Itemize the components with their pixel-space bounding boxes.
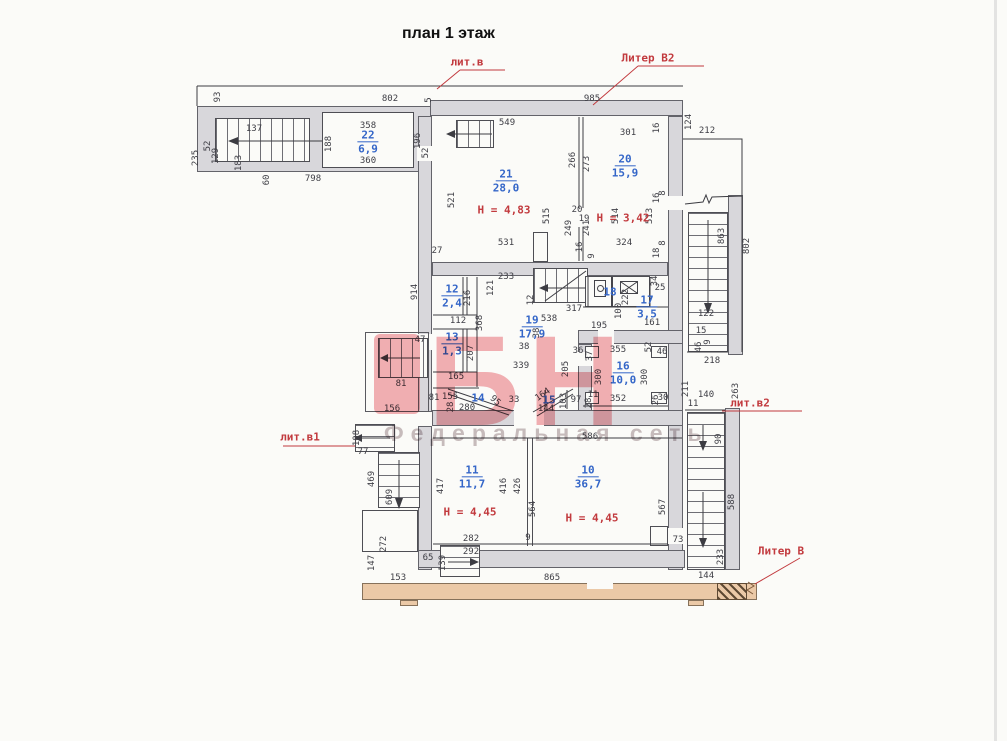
liter-b-tab — [400, 600, 418, 606]
stairs-room-21 — [456, 120, 494, 148]
dimension-label: 144 — [698, 571, 714, 581]
room-number-label: 2015,9 — [612, 152, 639, 179]
room-area: 17,9 — [519, 328, 546, 341]
dimension-label: 865 — [544, 573, 560, 583]
partition — [527, 438, 533, 546]
dimension-label: 549 — [499, 118, 515, 128]
dimension-label: 567 — [658, 499, 668, 515]
dimension-label: 25 — [655, 283, 666, 293]
room-area: 2,4 — [441, 297, 462, 310]
room-number: 17 — [636, 293, 657, 307]
dimension-label: 30 — [658, 393, 669, 403]
dimension-label: 11 — [688, 399, 699, 409]
dimension-label: 233 — [498, 272, 514, 282]
stairs-top-left — [215, 118, 310, 162]
room-number-label: 131,3 — [441, 330, 462, 357]
dimension-label: 52 — [644, 342, 654, 353]
floor-plan-scan: план 1 этаж — [0, 0, 1007, 741]
dimension-label: 802 — [742, 238, 752, 254]
room-number-label: 173,5 — [636, 293, 657, 320]
dimension-label: 802 — [382, 94, 398, 104]
liter-b-tab — [688, 600, 704, 606]
dimension-label: 156 — [384, 404, 400, 414]
dimension-label: 139 — [438, 555, 448, 571]
dimension-label: 129 — [211, 148, 221, 164]
room-area: 10,0 — [610, 374, 637, 387]
dimension-label: 249 — [564, 220, 574, 236]
dimension-label: 863 — [717, 228, 727, 244]
room-number: 10 — [577, 463, 598, 477]
dimension-label: 292 — [463, 547, 479, 557]
dimension-label: 211 — [681, 381, 691, 397]
dimension-label: 355 — [610, 345, 626, 355]
dimension-label: 368 — [475, 315, 485, 331]
room-area: 15,9 — [612, 167, 639, 180]
dimension-label: 609 — [385, 489, 395, 505]
dimension-label: 28 — [446, 402, 456, 413]
dimension-label: 360 — [360, 156, 376, 166]
ceiling-height-label: Н = 4,45 — [444, 506, 497, 519]
room-area: 36,7 — [575, 478, 602, 491]
ceiling-height-label: Н = 4,45 — [566, 512, 619, 525]
room-number-label: 2128,0 — [493, 167, 520, 194]
dimension-label: 218 — [704, 356, 720, 366]
dimension-label: 124 — [684, 114, 694, 130]
dimension-label: 273 — [582, 156, 592, 172]
dimension-label: 212 — [699, 126, 715, 136]
liter-b-building — [362, 583, 757, 600]
liter-label: лит.в2 — [730, 397, 770, 410]
dimension-label: 36 — [573, 346, 584, 356]
liter-b-recess — [587, 582, 613, 589]
dimension-label: 914 — [410, 284, 420, 300]
dimension-label: 352 — [610, 394, 626, 404]
ceiling-height-label: Н = 3,42 — [597, 212, 650, 225]
dimension-label: 155 — [442, 392, 458, 402]
dimension-label: 81 — [429, 393, 440, 403]
dimension-label: 16 — [575, 242, 585, 253]
dimension-label: 233 — [716, 549, 726, 565]
room-number: 20 — [614, 152, 635, 166]
dimension-label: 272 — [379, 536, 389, 552]
dimension-label: 60 — [262, 175, 272, 186]
room-number-label: 15 — [542, 393, 555, 406]
room-number: 18 — [603, 285, 616, 298]
dimension-label: 18 — [652, 248, 662, 259]
room-number: 16 — [612, 359, 633, 373]
dimension-label: 121 — [486, 280, 496, 296]
dimension-label: 324 — [616, 238, 632, 248]
room-area: 6,9 — [357, 143, 378, 156]
dimension-label: 282 — [463, 534, 479, 544]
room-number-label: 1111,7 — [459, 463, 486, 490]
dimension-label: 798 — [305, 174, 321, 184]
room-number-label: 1036,7 — [575, 463, 602, 490]
liter-b-hatched-section — [717, 583, 747, 600]
wall-segment — [418, 426, 432, 570]
dimension-label: 97 — [571, 395, 582, 405]
dimension-label: 90 — [714, 434, 724, 445]
duct-box — [533, 232, 548, 262]
room-number-label: 14 — [471, 391, 484, 404]
dimension-label: 12 — [526, 295, 536, 306]
dimension-label: 521 — [447, 192, 457, 208]
dimension-label: 16 — [652, 123, 662, 134]
dimension-label: 81 — [396, 379, 407, 389]
room-number: 13 — [441, 330, 462, 344]
wall-segment — [578, 330, 683, 344]
dimension-label: 37 — [585, 351, 595, 362]
dimension-label: 137 — [246, 124, 262, 134]
room-number-label: 1917,9 — [519, 313, 546, 340]
room-number-label: 122,4 — [441, 282, 462, 309]
dimension-label: 985 — [584, 94, 600, 104]
scan-edge-shadow — [994, 0, 997, 741]
room-number: 19 — [521, 313, 542, 327]
left-lower-box — [362, 510, 418, 552]
dimension-label: 317 — [566, 304, 582, 314]
dimension-label: 112 — [450, 316, 466, 326]
dimension-label: 65 — [423, 553, 434, 563]
door-opening — [598, 330, 614, 344]
dimension-label: 153 — [390, 573, 406, 583]
dimension-label: 9 — [587, 253, 597, 258]
dimension-label: 8 — [658, 190, 668, 195]
room-number: 22 — [357, 128, 378, 142]
liter-label: Литер В2 — [622, 52, 675, 65]
dimension-label: 38 — [519, 342, 530, 352]
room-number: 11 — [461, 463, 482, 477]
room-area: 11,7 — [459, 478, 486, 491]
fixture-box — [650, 526, 668, 546]
dimension-label: 9 — [525, 533, 530, 543]
door-opening — [667, 196, 684, 210]
dimension-label: 46 — [657, 347, 668, 357]
dimension-label: 47 — [415, 335, 426, 345]
dimension-label: 103 — [559, 393, 569, 409]
dimension-label: 165 — [448, 372, 464, 382]
dimension-label: 33 — [509, 395, 520, 405]
dimension-label: 95 — [488, 394, 503, 409]
wall-segment — [728, 195, 743, 355]
room-area: 28,0 — [493, 182, 520, 195]
dimension-label: 300 — [640, 369, 650, 385]
dimension-label: 147 — [367, 555, 377, 571]
dimension-label: 28 — [584, 398, 594, 409]
dimension-label: 15 — [696, 326, 707, 336]
dimension-label: 416 — [499, 478, 509, 494]
room-number-label: 1610,0 — [610, 359, 637, 386]
dimension-label: 417 — [436, 478, 446, 494]
dimension-label: 8 — [658, 240, 668, 245]
dimension-label: 339 — [513, 361, 529, 371]
dimension-label: 5 — [424, 97, 434, 102]
dimension-label: 531 — [498, 238, 514, 248]
dimension-label: 195 — [591, 321, 607, 331]
liter-label: лит.в1 — [280, 431, 320, 444]
room-area: 3,5 — [636, 308, 657, 321]
dimension-label: 426 — [513, 478, 523, 494]
dimension-label: 469 — [367, 471, 377, 487]
dimension-label: 183 — [234, 155, 244, 171]
liter-label: лит.в — [450, 56, 483, 69]
dimension-label: 216 — [463, 290, 473, 306]
dimension-label: 207 — [466, 345, 476, 361]
dimension-label: 93 — [213, 92, 223, 103]
dimension-label: 301 — [620, 128, 636, 138]
dimension-label: 73 — [673, 535, 684, 545]
dimension-label: 515 — [542, 208, 552, 224]
dimension-label: 588 — [727, 494, 737, 510]
ceiling-height-label: Н = 4,83 — [478, 204, 531, 217]
dimension-label: 235 — [191, 150, 201, 166]
dimension-label: 564 — [528, 501, 538, 517]
room-number: 21 — [495, 167, 516, 181]
dimension-label: 140 — [698, 390, 714, 400]
dimension-label: 266 — [568, 152, 578, 168]
dimension-label: 9 — [703, 339, 713, 344]
stairs-center — [533, 268, 588, 303]
dimension-label: 300 — [594, 369, 604, 385]
page-title: план 1 этаж — [402, 25, 495, 43]
dimension-label: 52 — [421, 148, 431, 159]
wall-segment — [725, 408, 740, 570]
room-number-label: 18 — [603, 285, 616, 298]
dimension-label: 241 — [582, 220, 592, 236]
room-area: 1,3 — [441, 345, 462, 358]
liter-label: Литер В — [758, 545, 804, 558]
wall-segment — [430, 100, 683, 116]
room-number: 14 — [471, 391, 484, 404]
dimension-label: 108 — [352, 430, 362, 446]
dimension-label: 100 — [614, 303, 624, 319]
dimension-label: 586 — [582, 432, 598, 442]
room-number: 15 — [542, 393, 555, 406]
room-number: 12 — [441, 282, 462, 296]
dimension-label: 122 — [698, 309, 714, 319]
dimension-label: 27 — [432, 246, 443, 256]
dimension-label: 77 — [358, 447, 369, 457]
room-number-label: 226,9 — [357, 128, 378, 155]
dimension-label: 188 — [324, 136, 334, 152]
dimension-label: 205 — [561, 361, 571, 377]
